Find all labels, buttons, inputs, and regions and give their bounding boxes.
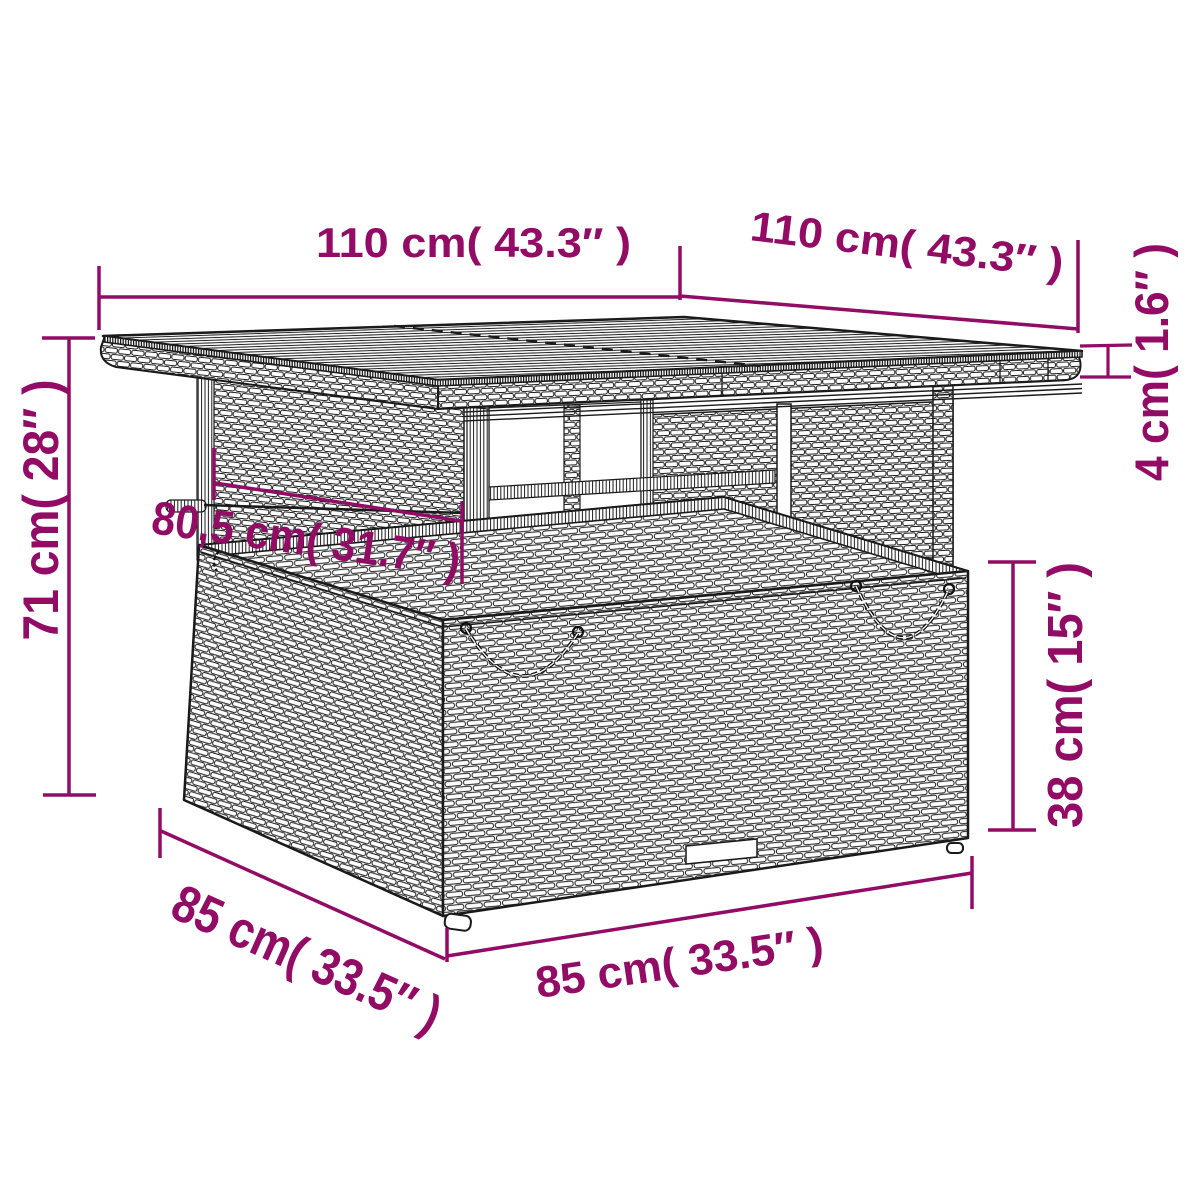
svg-text:38 cm( 15″ ): 38 cm( 15″ ) [1039, 562, 1093, 828]
svg-text:71 cm( 28″ ): 71 cm( 28″ ) [13, 380, 69, 641]
svg-text:110 cm( 43.3″ ): 110 cm( 43.3″ ) [316, 219, 631, 266]
svg-text:4 cm( 1.6″ ): 4 cm( 1.6″ ) [1125, 243, 1178, 481]
